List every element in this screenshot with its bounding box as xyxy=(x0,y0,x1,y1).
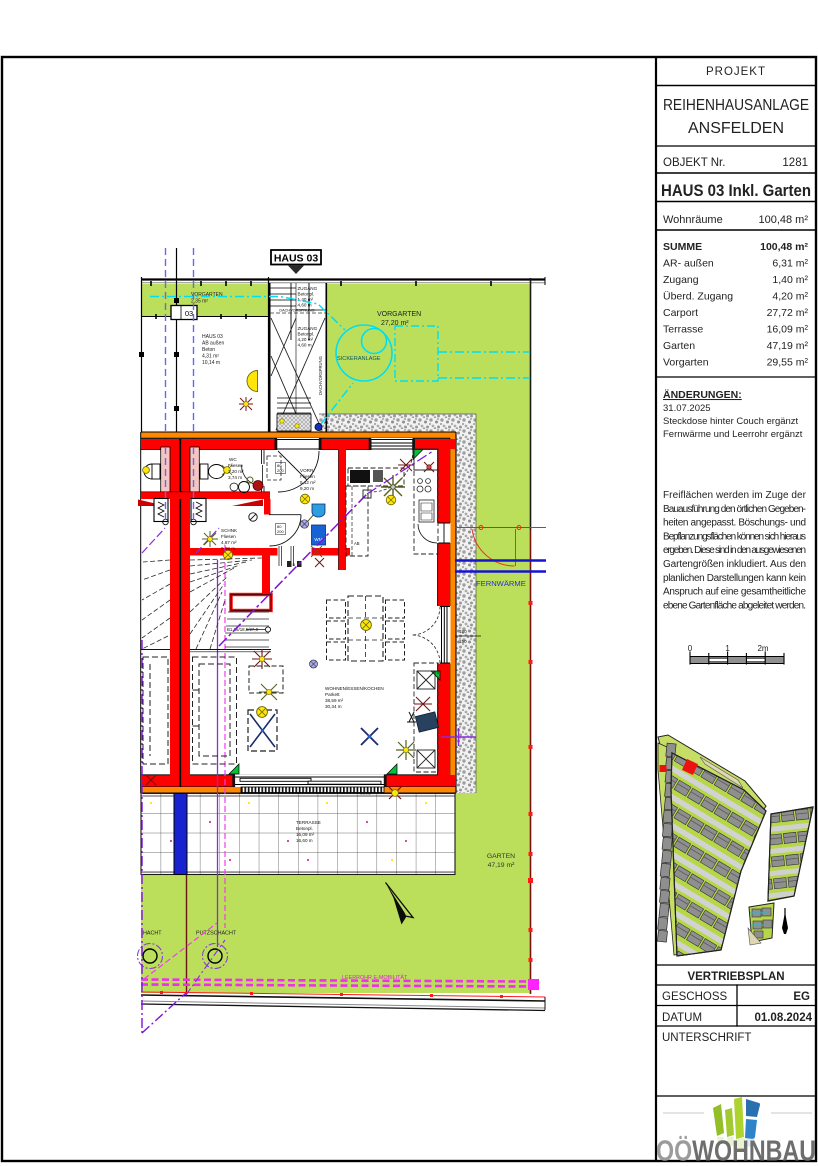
svg-text:100,48 m²: 100,48 m² xyxy=(758,214,808,226)
svg-text:1,40 m²: 1,40 m² xyxy=(772,274,808,286)
svg-text:16,09 m²: 16,09 m² xyxy=(767,324,809,336)
svg-text:Überd. Zugang: Überd. Zugang xyxy=(663,291,733,303)
svg-text:DACHVORSPRUNG: DACHVORSPRUNG xyxy=(318,356,323,395)
svg-text:AB: AB xyxy=(354,541,360,546)
svg-text:KL: KL xyxy=(324,420,330,425)
svg-text:SUMME: SUMME xyxy=(663,241,702,253)
svg-text:DACHVORSPRUNG: DACHVORSPRUNG xyxy=(279,309,314,313)
svg-text:4,60 m: 4,60 m xyxy=(298,343,312,348)
svg-text:4,20 m²: 4,20 m² xyxy=(298,337,314,342)
svg-text:2m: 2m xyxy=(757,644,768,653)
svg-text:2,20 m²: 2,20 m² xyxy=(228,469,244,474)
svg-text:HACHT: HACHT xyxy=(143,931,162,937)
svg-text:SICKERANLAGE: SICKERANLAGE xyxy=(337,356,381,362)
svg-text:Vorgarten: Vorgarten xyxy=(663,357,709,369)
svg-text:4,87 m²: 4,87 m² xyxy=(221,540,237,545)
svg-text:ÄNDERUNGEN:: ÄNDERUNGEN: xyxy=(663,388,742,401)
svg-text:AB außen: AB außen xyxy=(202,341,224,347)
svg-text:4,31 m²: 4,31 m² xyxy=(202,354,219,360)
svg-text:Fliesen: Fliesen xyxy=(300,474,315,479)
svg-text:150: 150 xyxy=(459,639,467,644)
svg-text:OBJEKT Nr.: OBJEKT Nr. xyxy=(663,157,725,169)
svg-text:GESCHOSS: GESCHOSS xyxy=(662,991,728,1003)
svg-text:ZUGANG: ZUGANG xyxy=(298,326,318,331)
svg-text:ANSFELDEN: ANSFELDEN xyxy=(688,120,784,137)
svg-text:VERTRIEBSPLAN: VERTRIEBSPLAN xyxy=(687,971,784,983)
svg-text:EG: EG xyxy=(793,991,810,1003)
svg-text:PROJEKT: PROJEKT xyxy=(706,66,766,78)
svg-text:Zugang: Zugang xyxy=(663,274,699,286)
svg-text:Parkett: Parkett xyxy=(325,692,340,697)
svg-text:B1 16/18,5/27,0: B1 16/18,5/27,0 xyxy=(227,627,259,632)
svg-text:27,72 m²: 27,72 m² xyxy=(767,307,809,319)
svg-text:heiten angepasst. Böschungs- u: heiten angepasst. Böschungs- und xyxy=(663,518,806,529)
svg-text:Fernwärme und Leerrohr ergänzt: Fernwärme und Leerrohr ergänzt xyxy=(663,429,803,440)
svg-text:47,19 m²: 47,19 m² xyxy=(488,862,516,869)
svg-text:29,55 m²: 29,55 m² xyxy=(767,357,809,369)
svg-text:FERNWÄRME: FERNWÄRME xyxy=(476,579,526,588)
svg-text:ergeben. Diese sind in den aus: ergeben. Diese sind in den ausgewiesenen xyxy=(663,545,806,556)
svg-text:38,59 m²: 38,59 m² xyxy=(325,698,344,703)
svg-text:Carport: Carport xyxy=(663,307,698,319)
svg-text:PUTZSCHACHT: PUTZSCHACHT xyxy=(196,931,237,937)
svg-text:OÖWOHNBAU: OÖWOHNBAU xyxy=(656,1136,816,1166)
svg-text:30,34 m: 30,34 m xyxy=(325,704,342,709)
svg-text:ZUGANG: ZUGANG xyxy=(298,286,318,291)
svg-text:3,74 m: 3,74 m xyxy=(228,475,242,480)
svg-text:Freiflächen werden im Zuge der: Freiflächen werden im Zuge der xyxy=(663,490,807,501)
svg-text:Garten: Garten xyxy=(663,340,695,352)
svg-text:Bepflanzungsflächen können sic: Bepflanzungsflächen können sich hieraus xyxy=(663,531,806,542)
svg-text:Fliesen: Fliesen xyxy=(221,534,236,539)
svg-text:Gartengrößen inkludiert. Aus: Gartengrößen inkludiert. Aus den xyxy=(663,559,806,570)
svg-text:planlichen Darstellungen kann: planlichen Darstellungen kann kein xyxy=(663,573,806,584)
svg-text:SCHNK: SCHNK xyxy=(221,528,238,533)
svg-text:Betonpl.: Betonpl. xyxy=(298,332,315,337)
svg-text:Steckdose hinter Couch ergänzt: Steckdose hinter Couch ergänzt xyxy=(663,416,799,427)
svg-text:Beton: Beton xyxy=(202,347,215,353)
svg-text:AR- außen: AR- außen xyxy=(663,258,714,270)
svg-text:HAUS 03: HAUS 03 xyxy=(274,253,319,265)
svg-text:6,31 m²: 6,31 m² xyxy=(772,258,808,270)
svg-text:16,60 m: 16,60 m xyxy=(296,838,313,843)
svg-text:200: 200 xyxy=(277,529,284,534)
svg-text:01.08.2024: 01.08.2024 xyxy=(754,1012,812,1024)
svg-text:1281: 1281 xyxy=(782,157,808,169)
svg-text:4,60 m: 4,60 m xyxy=(298,303,312,308)
svg-text:HAUS 03 Inkl. Garten: HAUS 03 Inkl. Garten xyxy=(661,182,811,200)
svg-text:ebene Gartenfläche abgeleitet: ebene Gartenfläche abgeleitet werden. xyxy=(663,600,806,611)
svg-text:9,20 m: 9,20 m xyxy=(300,486,314,491)
svg-text:47,19 m²: 47,19 m² xyxy=(767,340,809,352)
svg-text:5,12 m²: 5,12 m² xyxy=(300,480,316,485)
svg-text:Anspruch auf eine gesamtheitli: Anspruch auf eine gesamtheitliche xyxy=(663,587,806,598)
svg-text:03: 03 xyxy=(185,309,193,318)
svg-text:180: 180 xyxy=(459,629,467,634)
svg-text:UNTERSCHRIFT: UNTERSCHRIFT xyxy=(662,1032,751,1044)
svg-text:HAUS 03: HAUS 03 xyxy=(202,334,223,340)
svg-text:10,14 m: 10,14 m xyxy=(202,360,220,366)
svg-text:REIHENHAUSANLAGE: REIHENHAUSANLAGE xyxy=(663,97,809,114)
svg-text:SOKL: SOKL xyxy=(360,791,371,796)
svg-text:16,09 m²: 16,09 m² xyxy=(296,832,315,837)
svg-text:TERRASSE: TERRASSE xyxy=(296,820,321,825)
svg-text:100,48 m²: 100,48 m² xyxy=(760,241,808,253)
svg-text:GARTEN: GARTEN xyxy=(487,853,515,860)
svg-text:Wohnräume: Wohnräume xyxy=(663,214,723,226)
svg-text:31.07.2025: 31.07.2025 xyxy=(663,403,711,414)
svg-text:B: B xyxy=(293,562,296,567)
svg-text:DATUM: DATUM xyxy=(662,1012,702,1024)
svg-text:WOHNEN/ESSEN/KOCHEN: WOHNEN/ESSEN/KOCHEN xyxy=(325,686,384,691)
svg-text:Bauausführung den örtlichen Ge: Bauausführung den örtlichen Gegeben- xyxy=(663,504,806,515)
svg-text:4,20 m²: 4,20 m² xyxy=(772,291,808,303)
svg-text:VORGARTEN: VORGARTEN xyxy=(377,311,421,318)
svg-text:VORR.: VORR. xyxy=(300,468,315,473)
svg-text:Terrasse: Terrasse xyxy=(663,324,703,336)
svg-text:Betonpl.: Betonpl. xyxy=(296,826,313,831)
svg-text:WC: WC xyxy=(229,457,237,462)
svg-text:Fliesen: Fliesen xyxy=(228,463,243,468)
svg-text:Betonpl.: Betonpl. xyxy=(298,292,315,297)
